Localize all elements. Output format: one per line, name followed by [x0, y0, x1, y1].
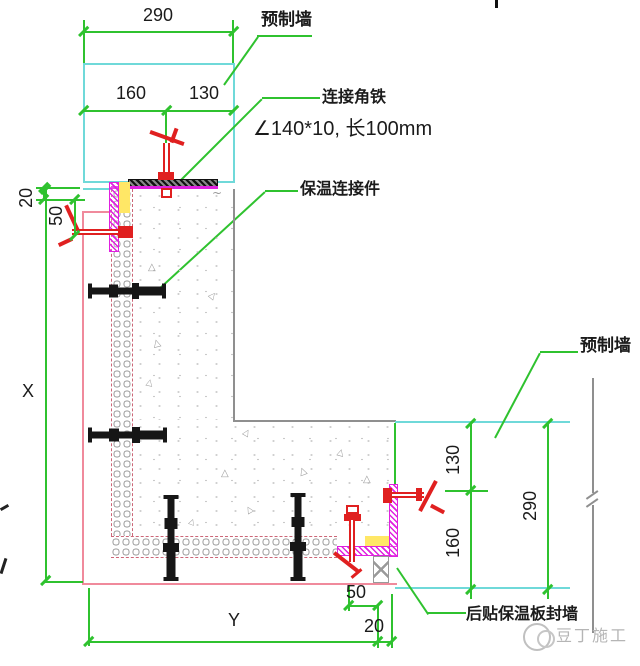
precast-wall-top-outline	[83, 63, 235, 183]
aggregate-mark: △	[148, 262, 156, 273]
label-seal-wall: 后贴保温板封墙	[466, 606, 578, 624]
dim-text-20-bottom: 20	[364, 617, 384, 637]
precast-edge-line	[394, 423, 396, 484]
leader-line-precast-top	[223, 36, 259, 85]
concrete-inner-edge-horizontal	[233, 420, 396, 422]
dim-text-160-right: 160	[444, 520, 464, 566]
dim-text-20-left: 20	[17, 183, 37, 213]
concrete-inner-edge-vertical	[233, 189, 235, 420]
clamp-knob	[346, 505, 359, 514]
insulation-anchor	[290, 493, 306, 581]
clamp-nut	[161, 188, 172, 198]
dim-text-x: X	[22, 382, 34, 402]
aggregate-mark: △	[221, 468, 229, 479]
dim-line-y	[88, 641, 391, 643]
edge-mark	[0, 558, 7, 574]
label-insulation-connector: 保温连接件	[300, 181, 380, 199]
clamp-handle-cross	[430, 504, 445, 515]
clamp-head	[383, 488, 392, 503]
precast-wall-right-bottom-edge	[395, 587, 570, 589]
dim-text-290-right: 290	[521, 483, 541, 529]
dim-text-50-left: 50	[47, 201, 67, 231]
break-line	[592, 505, 594, 633]
grout-strip-top	[119, 182, 130, 213]
leader-line-seal-wall	[396, 567, 429, 615]
dim-text-y: Y	[219, 611, 249, 631]
finish-line-top-stub	[82, 211, 111, 213]
leader-underline	[257, 35, 312, 37]
insulation-anchor	[88, 427, 167, 443]
label-precast-wall-right: 预制墙	[580, 337, 631, 356]
watermark-text: 豆丁施工	[556, 628, 628, 646]
label-precast-wall-top: 预制墙	[261, 11, 312, 30]
dim-text-290-top: 290	[134, 6, 182, 26]
dim-line-160-130	[83, 110, 233, 112]
leader-line	[540, 351, 578, 353]
dim-text-130-right: 130	[444, 437, 464, 483]
drawing-canvas: 290 160 130 预制墙 连接角铁 ∠140*10, 长100mm 保温连…	[0, 0, 640, 666]
watermark-logo-inner-icon	[537, 630, 555, 648]
joint-line-left	[83, 188, 111, 190]
grout-strip-bottom	[365, 536, 390, 546]
edge-mark	[0, 504, 9, 511]
leader-line	[265, 190, 298, 192]
dim-line-290	[83, 31, 233, 33]
ext-line	[45, 581, 83, 583]
seal-strip-top	[109, 182, 119, 252]
backer-rod-box	[373, 556, 389, 583]
finish-line-left	[82, 211, 84, 585]
dim-line-290-right	[547, 423, 549, 589]
ext-line	[232, 20, 234, 63]
dim-text-130-top: 130	[180, 84, 228, 104]
dim-text-160-top: 160	[107, 84, 155, 104]
dim-line-x	[45, 187, 47, 582]
dim-text-50-bottom: 50	[346, 583, 366, 603]
insulation-anchor	[88, 283, 166, 299]
precast-wall-right-top-edge	[395, 421, 570, 423]
dim-line-130-160	[470, 423, 472, 589]
aggregate-mark: △	[363, 474, 371, 485]
label-angle-iron-spec: ∠140*10, 长100mm	[253, 118, 432, 140]
break-line	[592, 378, 594, 493]
label-angle-iron: 连接角铁	[322, 89, 386, 107]
clamp-collar	[158, 172, 174, 180]
clamp-shaft	[349, 520, 355, 562]
clamp-block	[118, 226, 133, 238]
leader-line	[262, 97, 320, 99]
leader-line	[428, 612, 466, 614]
insulation-anchor	[163, 495, 179, 581]
leader-line-precast-right	[494, 353, 541, 439]
clamp-collar	[416, 488, 422, 501]
top-edge-mark	[495, 0, 498, 8]
